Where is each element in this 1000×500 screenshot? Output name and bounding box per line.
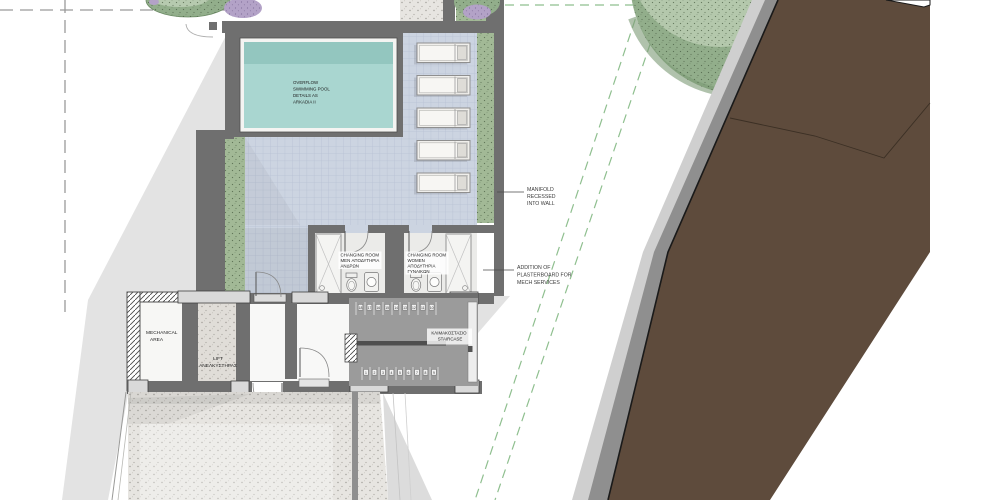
planter-east-speckle — [477, 33, 494, 223]
stair-tread-number: 18 — [359, 306, 363, 310]
stair-tread-number: 7 — [416, 371, 418, 375]
manifold-note-line-2: RECESSED — [527, 194, 556, 200]
hatched-wall-north — [140, 292, 178, 302]
women-label-line-1: CHANGING ROOM — [408, 253, 447, 258]
stair-tread-number: 12 — [412, 306, 416, 310]
plasterboard-note-line-2: PLASTERBOARD FOR — [517, 273, 572, 279]
men-sink — [365, 273, 379, 292]
women-toilet — [411, 273, 422, 291]
men-door-opening — [345, 225, 368, 233]
plasterboard-note: ADDITION OF PLASTERBOARD FOR MECH SERVIC… — [517, 265, 572, 286]
manifold-note-line-3: INTO WALL — [527, 201, 555, 207]
lift-shaft-stipple — [198, 302, 236, 381]
staircase: 181716151413121110 123456789 ΚΛΙΜΑΚΟΣΤΑΣ… — [345, 293, 478, 386]
stair-tread-number: 4 — [391, 371, 393, 375]
gate-swing-arc — [186, 24, 213, 37]
stair-tread-number: 11 — [421, 306, 425, 310]
basement-rooms — [112, 392, 411, 500]
sun-lounger-3 — [414, 108, 470, 130]
stair-tread-number: 9 — [433, 371, 435, 375]
wall-north-upper — [443, 0, 455, 27]
sun-lounger-1 — [414, 43, 470, 65]
changing-rooms: CHANGING ROOM MEN ΑΠΟΔΥΤΗΡΙΑ ΑΝΔΡΩΝ CHAN… — [308, 225, 494, 296]
men-toilet — [346, 273, 357, 291]
stair-tread-number: 13 — [403, 306, 407, 310]
stair-tread-numbers-lower: 123456789 — [364, 370, 437, 376]
stair-tread-number: 17 — [368, 306, 372, 310]
sun-lounger-4 — [414, 141, 470, 163]
wall-changing-west — [308, 225, 315, 296]
terrain — [572, 0, 930, 500]
women-door-opening — [409, 225, 432, 233]
basement-floor-highlight — [140, 424, 333, 500]
staircase-label-line-2: STAIRCASE — [438, 337, 463, 342]
stair-tread-number: 6 — [408, 371, 410, 375]
manifold-note: MANIFOLD RECESSED INTO WALL — [527, 187, 556, 207]
corridor-door-sill — [299, 379, 329, 387]
retaining-wall-west — [196, 130, 225, 291]
women-label-line-4: ΓΥΝΑΙΚΩΝ — [408, 269, 430, 274]
mechanical-label-line-2: AREA — [150, 337, 164, 343]
north-terrace-stipple — [400, 0, 443, 22]
pool-label-line-4: ARKADIA II — [293, 100, 316, 105]
stair-tread-number: 10 — [430, 306, 434, 310]
lift-lintel — [178, 291, 250, 303]
men-label-line-3: ΑΝΔΡΩΝ — [341, 264, 359, 269]
stair-tread-number: 1 — [365, 371, 367, 375]
stair-tread-number: 8 — [425, 371, 427, 375]
stair-tread-number: 16 — [376, 306, 380, 310]
south-block-2 — [231, 381, 249, 393]
wall-changing-middle — [385, 225, 404, 296]
manifold-note-line-1: MANIFOLD — [527, 187, 554, 193]
south-block-1 — [128, 380, 148, 393]
stair-tread-numbers-upper: 181716151413121110 — [358, 305, 434, 311]
women-sink — [428, 273, 442, 292]
south-shadow-wedge — [383, 393, 432, 500]
corridor-wall — [285, 303, 297, 379]
stair-tread-number: 5 — [399, 371, 401, 375]
sun-lounger-5 — [414, 173, 470, 195]
gate-post — [209, 22, 217, 30]
lift-label-line-1: LIFT — [213, 356, 223, 362]
men-label-line-2: MEN ΑΠΟΔΥΤΗΡΙΑ — [341, 258, 380, 263]
plasterboard-note-line-3: MECH SERVICES — [517, 280, 560, 286]
plasterboard-note-line-1: ADDITION OF — [517, 265, 550, 271]
mechanical-label-line-1: MECHANICAL — [146, 330, 178, 336]
women-label-line-2: WOMEN — [408, 258, 425, 263]
lift-label-line-2: ΑΝΕΛΚΥΣΤΗΡΑΣ — [199, 363, 237, 369]
planter-west-speckle — [225, 137, 245, 291]
column-block-1 — [292, 292, 328, 303]
wall-east — [494, 21, 504, 296]
pool-label-line-3: DETAILS AS — [293, 93, 318, 98]
pool-water-shadow — [244, 42, 393, 64]
women-label-line-3: ΑΠΟΔΥΤΗΡΙΑ — [408, 264, 436, 269]
stair-tread-number: 2 — [374, 371, 376, 375]
sun-lounger-2 — [414, 76, 470, 98]
wall-north — [222, 21, 503, 33]
women-shower — [446, 234, 471, 294]
lift-wall-east — [236, 302, 250, 381]
lift-wall-west — [182, 302, 198, 381]
stair-hatched-stub — [345, 334, 357, 362]
men-label-line-1: CHANGING ROOM — [341, 253, 380, 258]
pool-label-line-2: SWIMMING POOL — [293, 87, 330, 92]
pool-label-line-1: OVERFLOW — [293, 80, 319, 85]
stair-tread-number: 3 — [382, 371, 384, 375]
floor-plan-drawing: OVERFLOW SWIMMING POOL DETAILS AS ARKADI… — [0, 0, 1000, 500]
deck-shadow — [245, 228, 308, 296]
staircase-label-line-1: ΚΛΙΜΑΚΟΣΤΑΣΙΟ — [431, 331, 467, 336]
basement-partition-wall — [352, 392, 358, 500]
wall-west-upper — [225, 27, 234, 139]
men-shower — [316, 234, 341, 294]
hatched-wall-west — [127, 292, 140, 391]
floor-plan-canvas: OVERFLOW SWIMMING POOL DETAILS AS ARKADI… — [0, 0, 1000, 500]
staircase-label: ΚΛΙΜΑΚΟΣΤΑΣΙΟ STAIRCASE — [431, 331, 467, 342]
stair-tread-number: 14 — [394, 306, 398, 310]
stair-tread-number: 15 — [385, 306, 389, 310]
stair-east-tab — [468, 346, 473, 352]
